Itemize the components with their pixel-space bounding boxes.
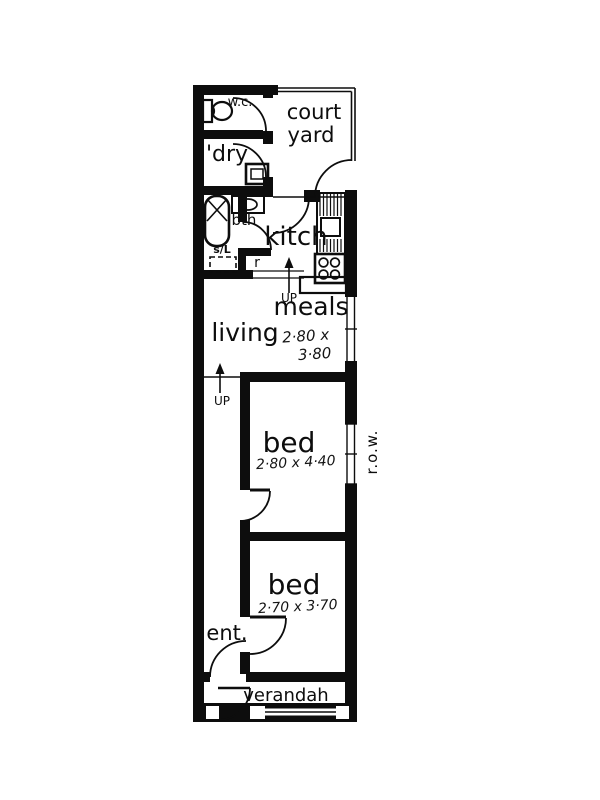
label-skylight: s/L [213, 243, 231, 256]
verandah-post-mid [250, 706, 265, 719]
floor-plan-drawing: w.c. l'dry court yard bth s/L r kitch li… [0, 0, 600, 800]
wall-wc-east-a [263, 85, 273, 98]
bathtub-icon [205, 196, 229, 246]
room-label-courtyard-1: court [287, 100, 342, 124]
dim-meals-1: 2·80 x [282, 325, 330, 346]
verandah-post-left [206, 706, 219, 719]
kitchen-step-lines [253, 271, 304, 278]
label-fridge-nook: r [254, 255, 260, 271]
room-label-laundry: l'dry [200, 142, 248, 167]
wall-front-left [193, 672, 210, 682]
wall-ldry-floor [204, 186, 273, 195]
room-label-kitchen: kitch [264, 222, 327, 252]
dim-meals-2: 3·80 [297, 344, 332, 364]
up-label-kitchen: UP [281, 291, 297, 305]
wall-front-right [246, 672, 357, 682]
window-bed1 [345, 424, 357, 484]
wall-wc-floor [204, 130, 263, 139]
room-label-entrance: ent. [206, 621, 247, 645]
arrowhead-icon [216, 363, 225, 374]
dim-bed2: 2·70 x 3·70 [258, 597, 338, 617]
wall-bed2-west-stub [240, 652, 250, 674]
up-arrow-kitchen [285, 257, 294, 293]
door-bed2 [250, 617, 286, 654]
wall-wc-east-b [263, 131, 273, 144]
up-arrow-hall [216, 363, 225, 393]
room-label-wc: w.c. [228, 95, 253, 110]
skylight-outline [210, 257, 236, 272]
wall-bed2-west [240, 541, 250, 617]
room-label-bath: bth [232, 211, 257, 229]
room-label-verandah: verandah [243, 685, 328, 706]
right-of-way-label: r.o.w. [363, 430, 381, 475]
door-bed1 [240, 490, 270, 521]
wall-right-lower [345, 484, 357, 722]
room-label-bed2: bed [268, 568, 321, 601]
wall-bed1-west [240, 382, 250, 490]
wall-bed1-bed2 [240, 532, 346, 541]
wall-living-bed1 [240, 372, 346, 382]
wall-right-mid [345, 361, 357, 424]
stove-icon [315, 254, 345, 283]
arrowhead-icon [285, 257, 294, 268]
room-label-courtyard-2: yard [288, 123, 335, 147]
wall-left [193, 85, 204, 722]
up-label-hall: UP [214, 394, 230, 408]
verandah-post-right [336, 706, 349, 719]
dim-bed1: 2·80 x 4·40 [256, 453, 336, 473]
room-label-living: living [211, 318, 278, 347]
floor-plan-page: w.c. l'dry court yard bth s/L r kitch li… [0, 0, 600, 800]
